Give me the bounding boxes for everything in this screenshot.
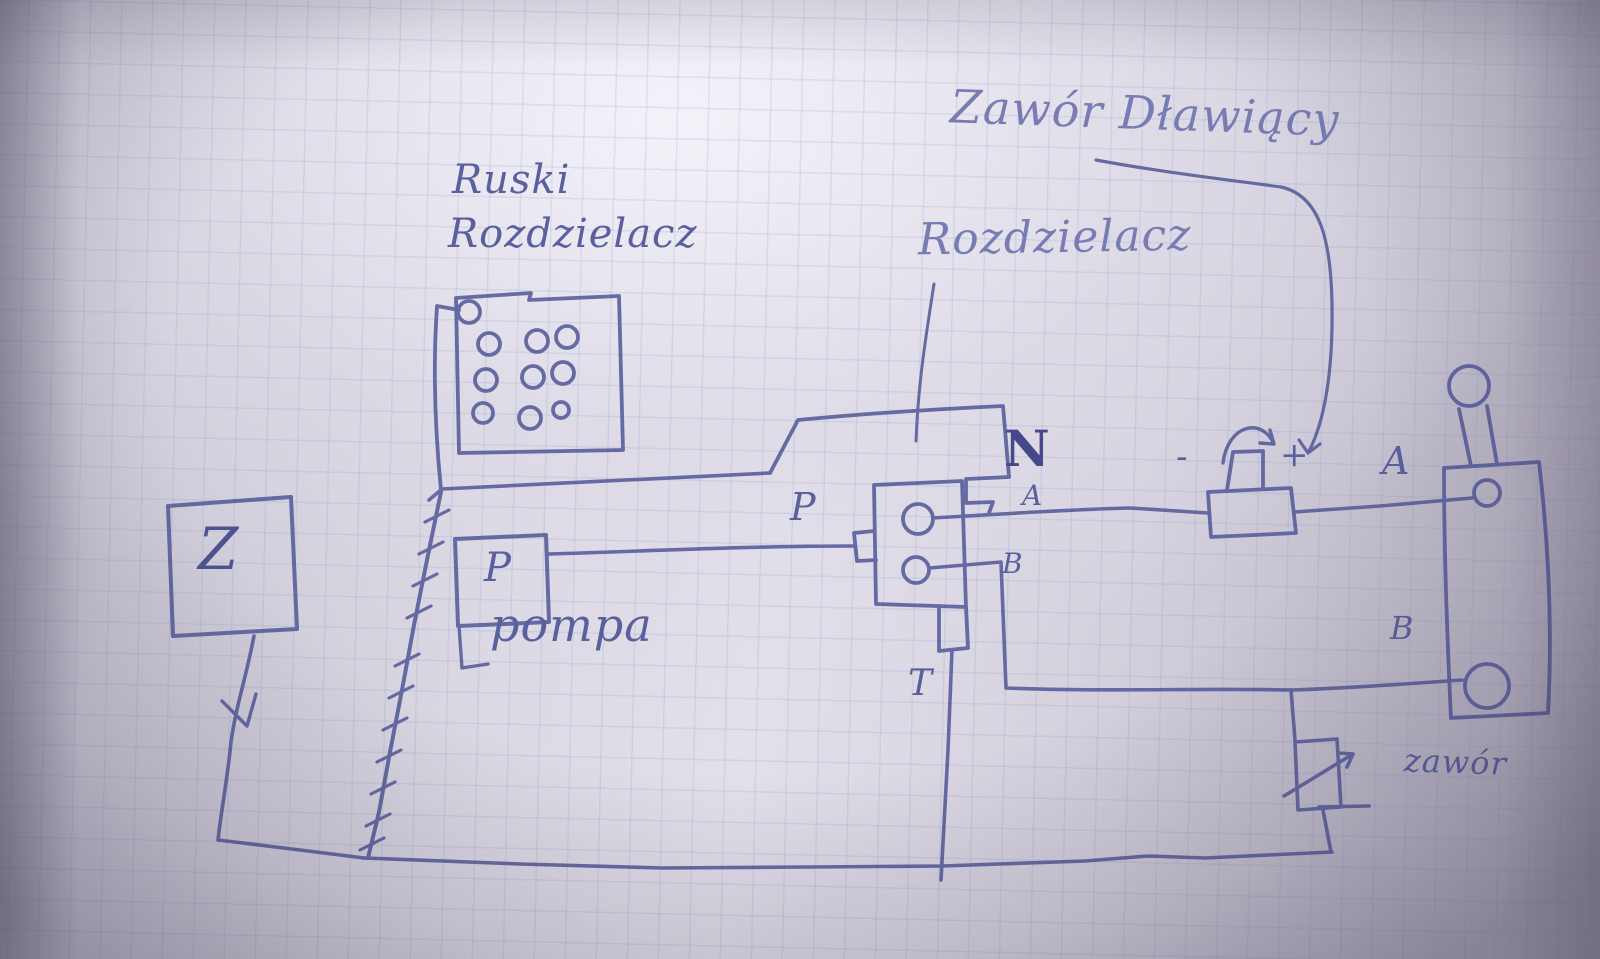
port-t-label: T	[908, 666, 933, 702]
port-hole	[473, 403, 493, 423]
label-leader-line	[916, 284, 934, 441]
upper-supply-line	[429, 473, 770, 500]
shutoff-valve-caption: zawór	[1403, 744, 1507, 780]
title-underline-curve	[1096, 160, 1332, 453]
photo-of-hand-drawn-schematic: Zawór Dławiący Ruski Rozdzielacz Rozdzie…	[0, 0, 1600, 959]
cylinder-port-a-label: A	[1382, 442, 1410, 480]
pump-letter: P	[484, 548, 512, 588]
hatched-line	[360, 492, 449, 858]
port-hole	[553, 402, 569, 418]
port-hole	[1474, 480, 1500, 506]
port-n-label: N	[1004, 424, 1051, 474]
pump-caption: pompa	[490, 602, 653, 648]
port-hole	[903, 504, 933, 534]
cylinder-symbol	[1444, 366, 1550, 718]
port-hole	[458, 301, 480, 323]
b-line	[929, 562, 1462, 740]
tank-letter: Z	[198, 520, 239, 578]
russian-distributor-title-line1: Ruski	[452, 160, 570, 200]
port-hole	[1465, 664, 1509, 708]
p-port-notch	[854, 531, 876, 561]
ink-drawing-layer	[0, 0, 1600, 959]
port-hole	[903, 557, 929, 583]
pump-pressure-line	[549, 546, 854, 554]
port-hole	[519, 407, 541, 429]
bottom-return-line	[364, 852, 1332, 868]
throttle-valve-title: Zawór Dławiący	[949, 83, 1340, 143]
a-line	[933, 498, 1472, 518]
russian-distributor-title-line2: Rozdzielacz	[448, 214, 698, 254]
port-b-label: B	[1002, 550, 1024, 578]
shutoff-valve-symbol	[1284, 739, 1369, 852]
russian-distributor-symbol	[435, 293, 623, 490]
port-hole	[556, 326, 578, 348]
port-p-label: P	[790, 488, 817, 526]
port-hole	[478, 333, 500, 355]
lever-knob	[1449, 366, 1489, 406]
port-a-label: A	[1022, 482, 1043, 510]
port-hole	[552, 362, 574, 384]
distributor-symbol	[770, 284, 1009, 880]
distributor-title: Rozdzielacz	[918, 214, 1192, 263]
port-hole	[526, 330, 548, 352]
throttle-minus-sign: -	[1176, 440, 1189, 474]
tank-return-pipe	[941, 650, 952, 880]
spool-stub	[939, 606, 968, 651]
port-hole	[475, 369, 497, 391]
cylinder-port-b-label: B	[1390, 612, 1415, 644]
port-hole	[522, 366, 544, 388]
lever-handle	[1459, 406, 1497, 466]
throttle-plus-sign: +	[1280, 438, 1310, 472]
